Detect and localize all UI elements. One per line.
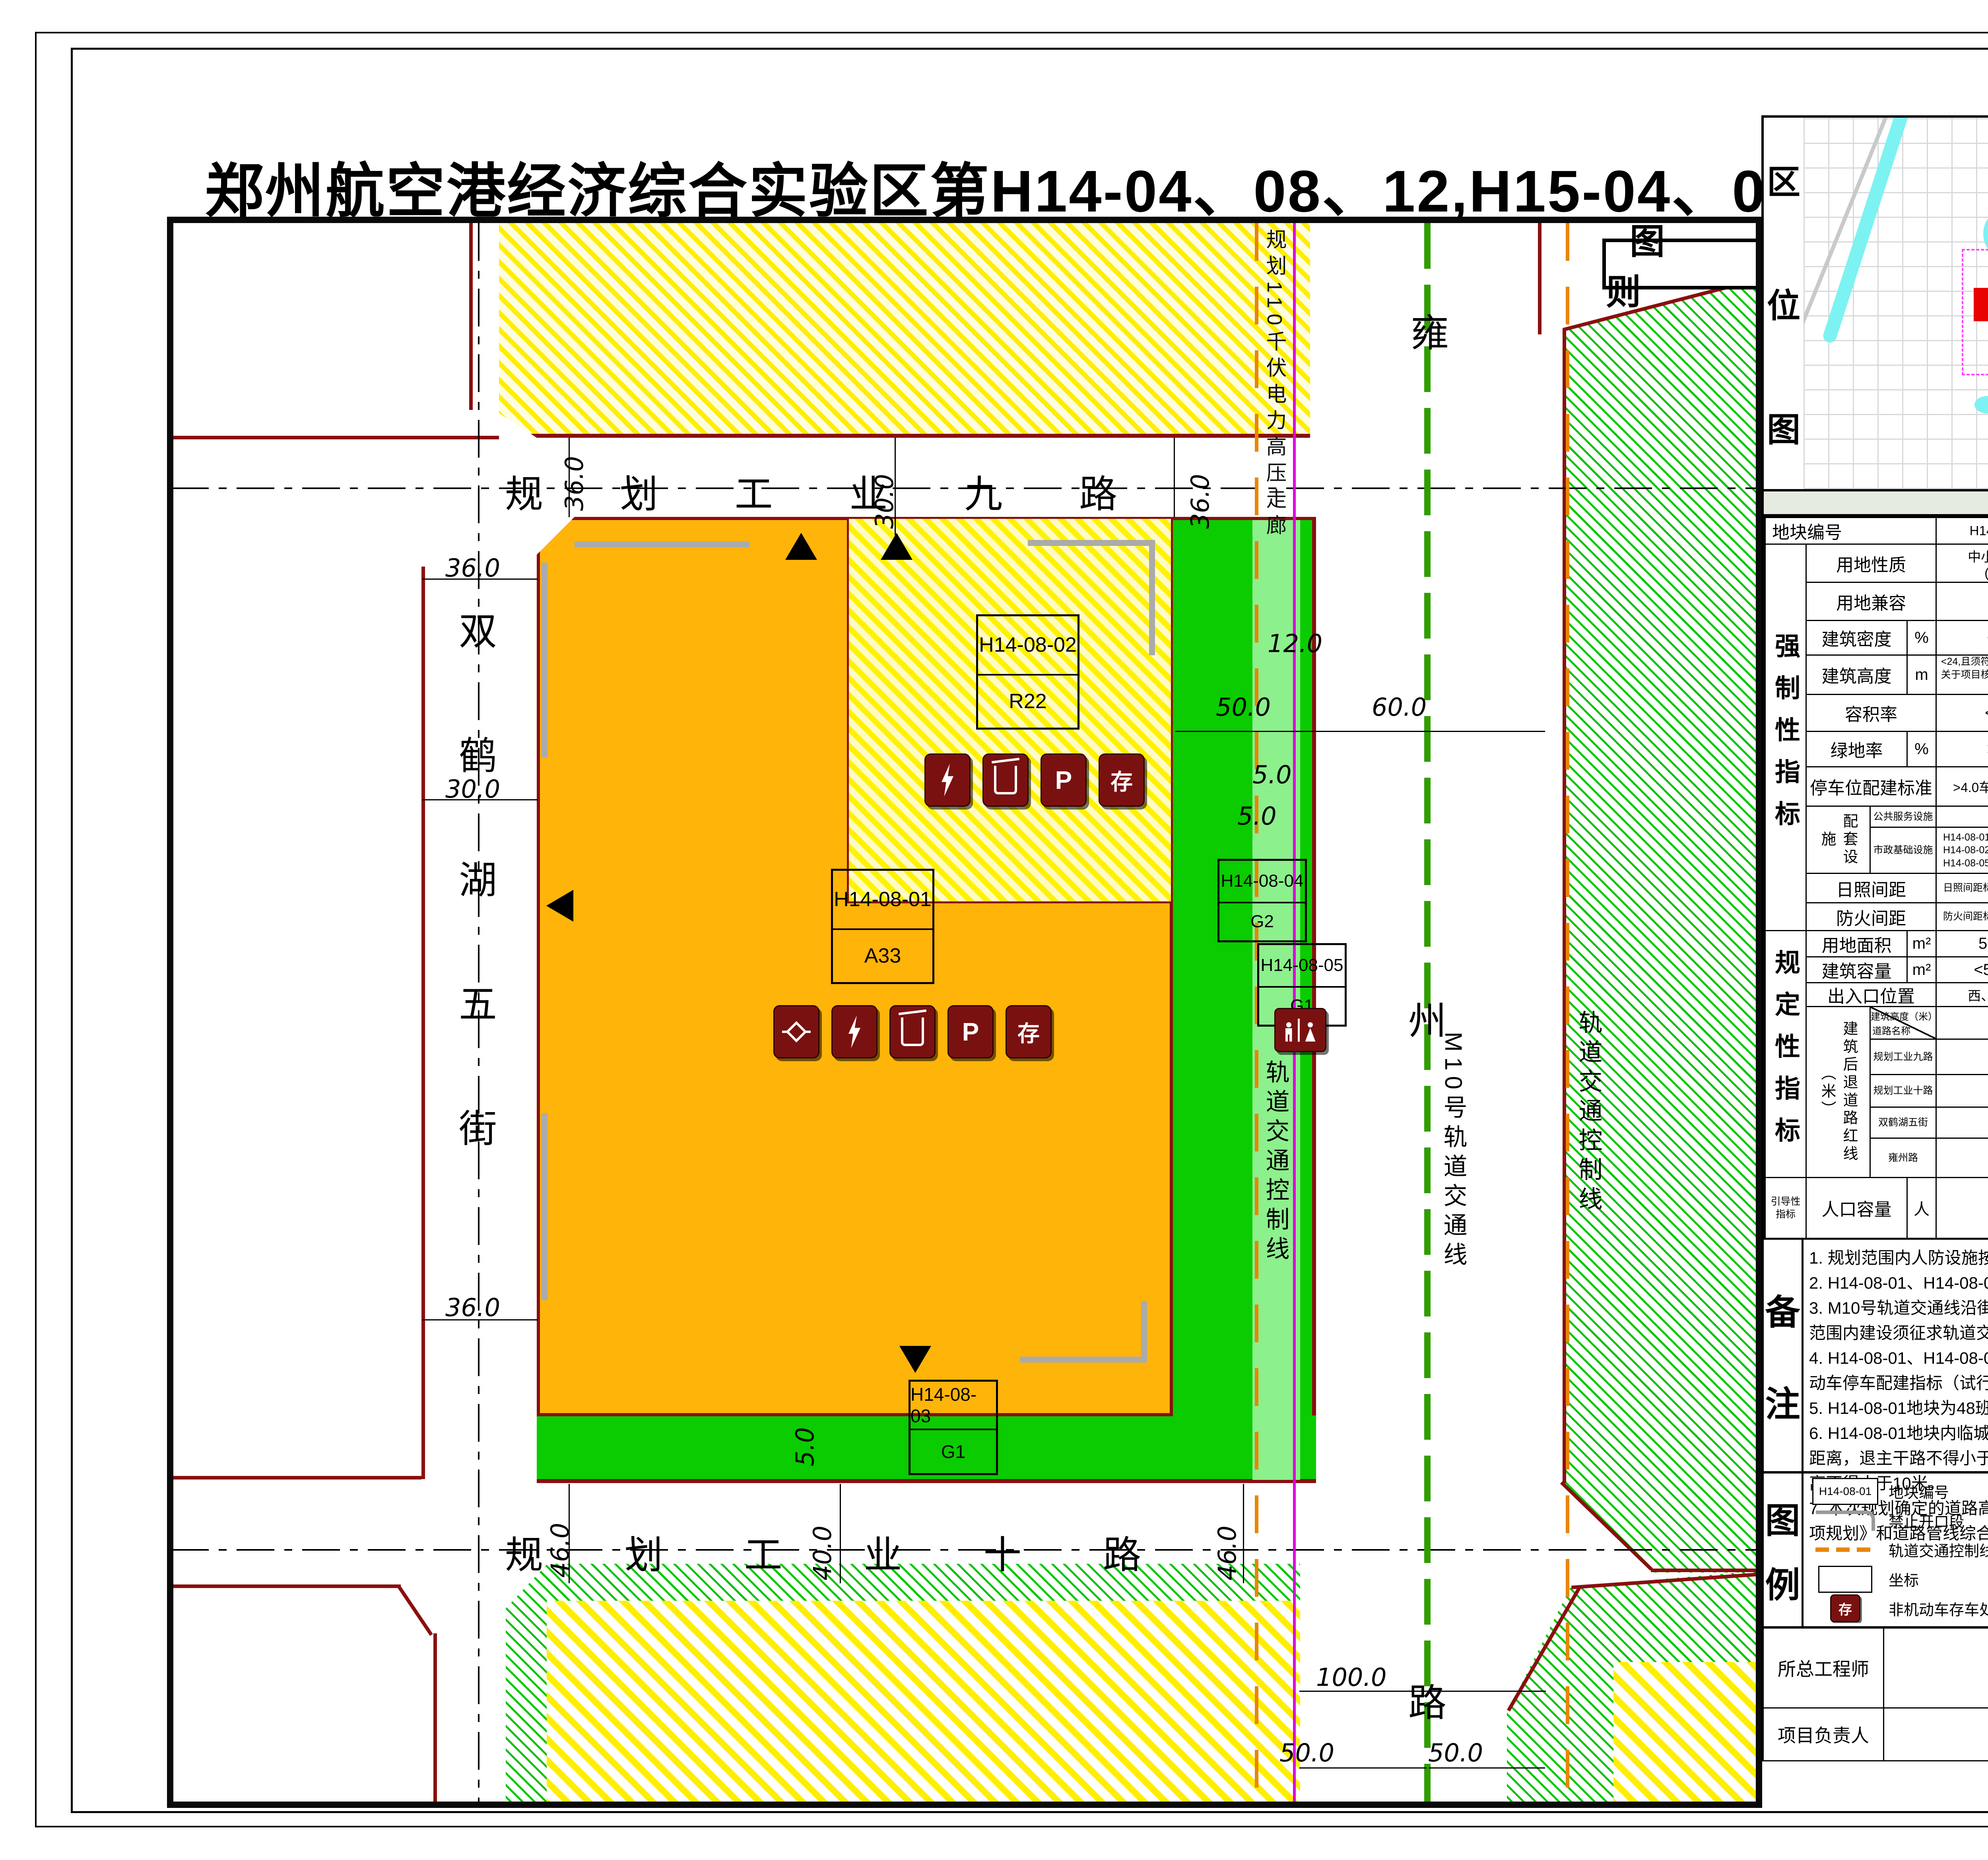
plot-label-H14-08-02: H14-08-02 R22 bbox=[976, 614, 1079, 730]
metro-line-label: M10号轨道交通线 bbox=[1436, 1032, 1471, 1272]
legend-item: H14-08-01地块编号 bbox=[1807, 1477, 1988, 1506]
legend-item-label: 坐标 bbox=[1889, 1568, 1919, 1590]
road-boundary bbox=[171, 1476, 421, 1479]
road-name-char: 鹤 bbox=[459, 725, 497, 780]
road-name-char: 十 bbox=[983, 1524, 1021, 1579]
title-block: 所总工程师 工程名称 郑州航空港经济综合实验区第H14-04、08、12,H15… bbox=[1764, 1629, 1988, 1759]
sheet-type-label: 图 则 bbox=[1602, 239, 1762, 289]
rail-control-line bbox=[1566, 223, 1569, 1807]
parking-icon: P bbox=[1041, 753, 1087, 807]
road-boundary bbox=[421, 567, 425, 1479]
parcel-north-yellow bbox=[499, 223, 1310, 438]
table-cell: 建筑高度（米）道路名称 bbox=[1871, 1007, 1936, 1039]
entry-direction-icon bbox=[881, 533, 912, 560]
table-cell: 绿地率 bbox=[1807, 732, 1906, 766]
table-cell: <0.9 bbox=[1937, 695, 1988, 731]
table-cell: 规划工业九路 bbox=[1871, 1040, 1936, 1074]
inset-river bbox=[1821, 118, 1910, 344]
plot-label-H14-08-04: H14-08-04 G2 bbox=[1217, 859, 1307, 942]
plot-code: G1 bbox=[911, 1430, 996, 1473]
power-corridor-label: 规划110千伏电力高压走廊 bbox=[1260, 229, 1289, 541]
table-cell: 防火间距标准应符合《建筑设计防火规范（GB 50016-2014）》有关规定。 bbox=[1937, 903, 1988, 930]
dimension-label: 5.0 bbox=[1237, 802, 1277, 831]
table-cell: m² bbox=[1908, 957, 1936, 982]
plot-id: H14-08-03 bbox=[911, 1382, 996, 1430]
parcel-southeast-yellow bbox=[1613, 1662, 1761, 1807]
plot-id: H14-08-01 bbox=[833, 871, 932, 930]
note-item: 4. H14-08-01、H14-08-02地块内配建非机动车停车位应符合《郑州… bbox=[1809, 1345, 1988, 1396]
road-name-west: 双鹤湖五街 bbox=[458, 600, 498, 1153]
location-label: 区位图 bbox=[1764, 118, 1806, 489]
legend-item: 轨道交通控制线 bbox=[1807, 1535, 1988, 1565]
dimension-label: 46.0 bbox=[546, 1523, 575, 1578]
table-cell: ≥10 bbox=[1937, 1108, 1988, 1138]
no-open-icon bbox=[1807, 1511, 1883, 1531]
table-cell: 人口容量 bbox=[1807, 1178, 1906, 1238]
table-cell: 用地性质 bbox=[1807, 545, 1936, 582]
rail-control-label-west: 轨道交通控制线 bbox=[1258, 1060, 1293, 1266]
page-title: 郑州航空港经济综合实验区第H14-04、08、12,H15-04、06街坊控制性… bbox=[205, 143, 1988, 229]
dimension-label: 12.0 bbox=[1268, 629, 1322, 658]
road-name-char: 工 bbox=[744, 1524, 782, 1579]
plot-id: H14-08-04 bbox=[1219, 861, 1305, 903]
table-cell: % bbox=[1908, 621, 1936, 654]
note-item: 1. 规划范围内人防设施按国家规定的要求配套建设。 bbox=[1809, 1245, 1988, 1270]
entry-direction-icon bbox=[899, 1346, 931, 1373]
note-item: 5. H14-08-01地块为48班寄宿制高中；H14-08-02地块为12班幼… bbox=[1809, 1396, 1988, 1421]
road-name-char: 雍 bbox=[1411, 302, 1449, 357]
no-open-segment bbox=[542, 563, 547, 757]
table-cell: 规定性指标 bbox=[1766, 931, 1806, 1177]
road-name-char: 路 bbox=[1103, 1524, 1141, 1579]
road-name-char: 工 bbox=[735, 463, 773, 518]
table-cell: - bbox=[1937, 1178, 1988, 1238]
table-cell: H14-08-01 bbox=[1937, 518, 1988, 544]
legend-item-label: 非机动车存车处 bbox=[1889, 1598, 1988, 1619]
heat-exchange-icon bbox=[773, 1005, 819, 1058]
table-cell: 日照间距 bbox=[1807, 874, 1936, 902]
no-open-segment bbox=[575, 542, 749, 548]
table-cell: 用地兼容 bbox=[1807, 583, 1936, 620]
notes-label: 备注 bbox=[1764, 1240, 1804, 1471]
road-boundary bbox=[171, 436, 499, 439]
table-cell: <24,且须符合机场管理机构关于项目核准净空高度的复函 bbox=[1937, 656, 1988, 694]
road-name-char: 规 bbox=[505, 1524, 543, 1579]
toilet-icon bbox=[1274, 1008, 1326, 1052]
inset-site-marker bbox=[1974, 288, 1988, 321]
plan-map-canvas: H14-08-01 A33 H14-08-02 R22 H14-08-03 G1… bbox=[167, 217, 1762, 1808]
rail-control-label-east: 轨道交通控制线 bbox=[1571, 1010, 1606, 1216]
road-name-char: 规 bbox=[505, 463, 543, 518]
rail-area-boundary bbox=[1651, 1569, 1761, 1572]
table-cell: 公共服务设施 bbox=[1871, 807, 1936, 827]
table-cell: 规划工业十路 bbox=[1871, 1075, 1936, 1107]
garbage-icon bbox=[889, 1005, 936, 1058]
table-cell: 停车位配建标准 bbox=[1807, 767, 1936, 806]
table-cell: 防火间距 bbox=[1807, 903, 1936, 930]
road-name-char: 划 bbox=[620, 463, 658, 518]
road-name-char: 路 bbox=[1408, 1672, 1446, 1727]
road-boundary bbox=[171, 1584, 401, 1588]
location-inset-map bbox=[1804, 118, 1988, 489]
table-cell: >35 bbox=[1937, 732, 1988, 766]
dimension-label: 36.0 bbox=[445, 553, 500, 582]
road-boundary bbox=[469, 223, 473, 410]
table-cell: 配套设施 bbox=[1807, 807, 1870, 873]
dimension-label: 60.0 bbox=[1372, 693, 1427, 722]
rail-ctl-icon bbox=[1807, 1547, 1883, 1552]
legend-grid: H14-08-01地块编号R2用地代码地块界限城市道路禁止开口段▲机动车建议开口… bbox=[1804, 1474, 1988, 1626]
legend-item: 存非机动车存车处 bbox=[1807, 1594, 1988, 1623]
garbage-icon bbox=[982, 753, 1029, 807]
entry-direction-icon bbox=[785, 533, 817, 560]
dimension-label: 50.0 bbox=[1279, 1738, 1334, 1767]
parking-icon: P bbox=[947, 1005, 994, 1058]
empty-icon bbox=[1807, 1566, 1883, 1593]
plot-label-H14-08-01: H14-08-01 A33 bbox=[831, 869, 934, 984]
table-cell: 地块编号 bbox=[1766, 518, 1936, 544]
no-open-segment bbox=[1141, 1301, 1147, 1361]
dimension-label: 40.0 bbox=[808, 1526, 837, 1580]
table-cell: 建筑后退道路红线（米） bbox=[1807, 1007, 1870, 1177]
control-indicators-header: 控 制 指 标 bbox=[1764, 491, 1988, 516]
dimension-label: 30.0 bbox=[870, 474, 899, 529]
dimension-label: 50.0 bbox=[1428, 1738, 1483, 1767]
table-cell: 市政基础设施 bbox=[1871, 828, 1936, 873]
legend-item: 坐标 bbox=[1807, 1565, 1988, 1594]
substation-icon bbox=[924, 753, 971, 807]
road-boundary bbox=[397, 1584, 433, 1636]
control-indicators-table: 地块编号H14-08-01H14-08-02H14-08-03H14-08-04… bbox=[1764, 516, 1988, 1240]
plot-code: G2 bbox=[1219, 903, 1305, 940]
substation-icon bbox=[831, 1005, 878, 1058]
no-open-segment bbox=[1020, 1357, 1147, 1363]
table-cell: - bbox=[1937, 807, 1988, 827]
table-cell: 西、北、南 bbox=[1937, 983, 1988, 1006]
table-cell: <53435 bbox=[1937, 957, 1988, 982]
legend-label: 图例 bbox=[1764, 1474, 1804, 1626]
bike-parking-icon: 存 bbox=[1006, 1005, 1052, 1058]
location-block: 区位图 分区编号 H14-08 N 1:2000 bbox=[1764, 118, 1988, 491]
table-cell: 人 bbox=[1908, 1178, 1936, 1238]
road-boundary bbox=[1538, 223, 1541, 334]
table-cell: - bbox=[1937, 583, 1988, 620]
road-name-char: 路 bbox=[1079, 463, 1117, 518]
right-panel: 区位图 分区编号 H14-08 N 1:2000 控 制 指 标 地块 bbox=[1761, 115, 1988, 1761]
table-cell: ≥10 bbox=[1937, 1040, 1988, 1074]
legend-item: 禁止开口段 bbox=[1807, 1506, 1988, 1536]
table-cell: m bbox=[1908, 656, 1936, 694]
chip-cun-icon: 存 bbox=[1807, 1594, 1883, 1622]
plot-id: H14-08-02 bbox=[978, 616, 1077, 676]
dimension-label: 5.0 bbox=[1252, 760, 1292, 789]
notes-section: 备注 1. 规划范围内人防设施按国家规定的要求配套建设。2. H14-08-01… bbox=[1764, 1240, 1988, 1474]
table-cell: 容积率 bbox=[1807, 695, 1936, 731]
plot-code: A33 bbox=[833, 930, 932, 982]
table-cell: H14-08-01地块内应配置热交换站、垃圾收集点、机动车停车场（库）、非机动车… bbox=[1937, 828, 1988, 873]
road-name-char: 双 bbox=[459, 600, 497, 656]
road-name-north: 规划工业九路 bbox=[505, 463, 1117, 518]
road-name-char: 划 bbox=[625, 1524, 663, 1579]
project-manager-label: 项目负责人 bbox=[1764, 1709, 1883, 1760]
plot-id: H14-08-05 bbox=[1259, 945, 1345, 988]
chief-engineer-signature bbox=[1884, 1629, 1988, 1707]
table-cell: 出入口位置 bbox=[1807, 983, 1936, 1006]
road-name-char: 五 bbox=[459, 973, 497, 1029]
legend-item-label: 轨道交通控制线 bbox=[1889, 1539, 1988, 1561]
table-cell: <35 bbox=[1937, 621, 1988, 654]
dimension-label: 36.0 bbox=[1186, 474, 1215, 529]
table-cell: 用地面积 bbox=[1807, 931, 1906, 956]
table-cell: 引导性指标 bbox=[1766, 1178, 1806, 1238]
project-manager-signature bbox=[1884, 1709, 1988, 1760]
road-name-char: 州 bbox=[1408, 990, 1446, 1045]
table-cell: ≥20 bbox=[1937, 1075, 1988, 1107]
table-cell: >4.0车位/百师生 bbox=[1937, 767, 1988, 806]
inset-pond bbox=[1974, 396, 1988, 414]
road-boundary bbox=[433, 1633, 437, 1807]
rail-control-area-east bbox=[1563, 276, 1761, 1573]
no-open-segment bbox=[1028, 540, 1155, 546]
table-cell: m² bbox=[1908, 931, 1936, 956]
planning-sheet: { "title": "郑州航空港经济综合实验区第H14-04、08、12,H1… bbox=[0, 0, 1988, 1860]
parcel-south-yellow bbox=[547, 1601, 1300, 1807]
table-cell: H≤24 bbox=[1937, 1007, 1988, 1039]
table-cell: 建筑高度 bbox=[1807, 656, 1906, 694]
table-cell: 中小学用地 (A33) bbox=[1937, 545, 1988, 582]
dimension-label: 30.0 bbox=[445, 775, 500, 804]
road-name-char: 业 bbox=[864, 1524, 902, 1579]
no-open-segment bbox=[542, 1113, 547, 1300]
dimension-label: 50.0 bbox=[1216, 693, 1271, 722]
note-item: 3. M10号轨道交通线沿街坊东侧的雍州路布置，两侧各控制50米宽的轨道交通控制… bbox=[1809, 1295, 1988, 1345]
note-item: 2. H14-08-01、H14-08-02地块紧邻城市绿地，地块内新建建筑后退… bbox=[1809, 1270, 1988, 1295]
bike-parking-icon: 存 bbox=[1099, 753, 1145, 807]
road-name-char: 湖 bbox=[459, 849, 497, 905]
road-name-char: 九 bbox=[964, 463, 1002, 518]
entry-direction-icon bbox=[546, 890, 573, 922]
road-name-char: 街 bbox=[459, 1098, 497, 1153]
table-cell: 建筑密度 bbox=[1807, 621, 1906, 654]
table-cell: 双鹤湖五街 bbox=[1871, 1108, 1936, 1138]
table-cell: 59372 bbox=[1937, 931, 1988, 956]
plot-id-icon: H14-08-01 bbox=[1807, 1478, 1883, 1505]
dimension-label: 36.0 bbox=[560, 456, 589, 511]
dimension-label: 5.0 bbox=[790, 1427, 819, 1466]
table-cell: ≥55 bbox=[1937, 1139, 1988, 1177]
dimension-label: 46.0 bbox=[1213, 1526, 1242, 1580]
legend-section: 图例 H14-08-01地块编号R2用地代码地块界限城市道路禁止开口段▲机动车建… bbox=[1764, 1474, 1988, 1629]
plot-label-H14-08-03: H14-08-03 G1 bbox=[909, 1380, 998, 1475]
table-cell: % bbox=[1908, 732, 1936, 766]
dimension-label: 36.0 bbox=[445, 1293, 500, 1322]
table-cell: 雍州路 bbox=[1871, 1139, 1936, 1177]
inset-highway bbox=[1804, 118, 1888, 398]
legend-item-label: 禁止开口段 bbox=[1889, 1510, 1964, 1532]
table-cell: 日照间距标准应符合《城市居住区规划设计规范（GB 50180-93）》(2002… bbox=[1937, 874, 1988, 902]
plan-map: H14-08-01 A33 H14-08-02 R22 H14-08-03 G1… bbox=[167, 217, 1762, 1808]
no-open-segment bbox=[1149, 540, 1155, 655]
plot-code: R22 bbox=[978, 676, 1077, 728]
table-cell: 建筑容量 bbox=[1807, 957, 1906, 982]
table-cell: 强制性指标 bbox=[1766, 545, 1806, 930]
chief-engineer-label: 所总工程师 bbox=[1764, 1629, 1883, 1707]
dimension-label: 100.0 bbox=[1316, 1663, 1387, 1692]
legend-item-label: 地块编号 bbox=[1889, 1480, 1949, 1502]
